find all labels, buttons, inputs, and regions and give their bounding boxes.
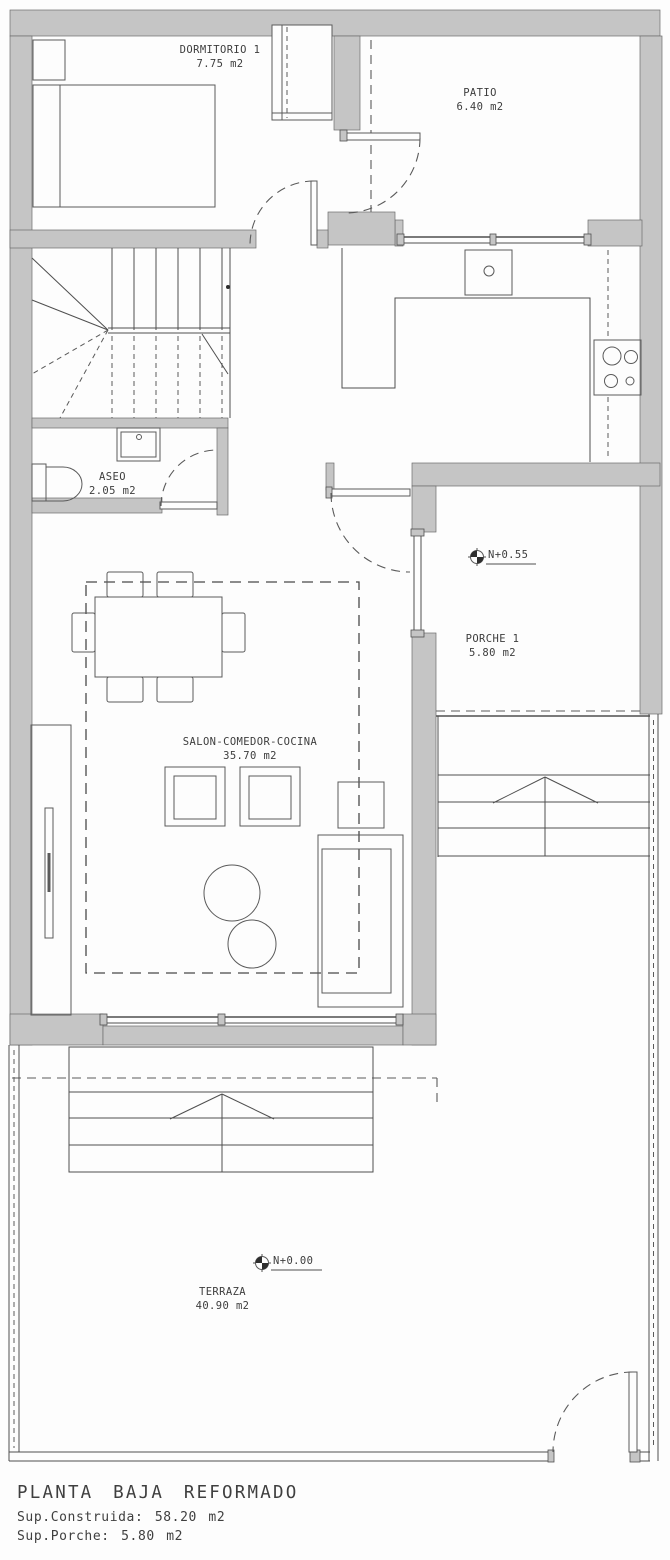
terrace-boundary: [9, 714, 658, 1462]
drawing-title: PLANTA BAJA REFORMADO: [17, 1483, 298, 1503]
level-label-porch: N+0.55: [488, 549, 528, 561]
patio-door: [340, 130, 420, 213]
roof-projection-lines: [12, 23, 652, 1102]
room-name: TERRAZA: [145, 1286, 300, 1300]
title-block: PLANTA BAJA REFORMADO Sup.Construida: 58…: [17, 1483, 298, 1548]
level-label-terrace: N+0.00: [273, 1255, 313, 1267]
tv-sideboard: [31, 725, 71, 1015]
porch-area-note: Sup.Porche: 5.80 m2: [17, 1529, 298, 1544]
room-name: DORMITORIO 1: [145, 44, 295, 58]
room-area: 5.80 m2: [415, 647, 570, 661]
room-label-porche: PORCHE 1 5.80 m2: [415, 633, 570, 660]
room-area: 2.05 m2: [50, 485, 175, 499]
entry-door: [326, 487, 410, 572]
room-name: ASEO: [50, 471, 175, 485]
kitchen-window: [397, 234, 591, 245]
exterior-walls: [10, 10, 662, 1045]
porch-steps: [436, 716, 650, 857]
nightstand: [33, 40, 65, 80]
room-area: 7.75 m2: [145, 58, 295, 72]
room-label-terraza: TERRAZA 40.90 m2: [145, 1286, 300, 1313]
room-label-aseo: ASEO 2.05 m2: [50, 471, 175, 498]
cooktop: [594, 340, 641, 395]
bedroom-door: [250, 181, 317, 245]
bathroom-sink: [117, 428, 160, 461]
staircase: [32, 248, 230, 418]
room-area: 6.40 m2: [405, 101, 555, 115]
room-name: PORCHE 1: [415, 633, 570, 647]
room-label-patio: PATIO 6.40 m2: [405, 87, 555, 114]
room-label-dormitorio: DORMITORIO 1 7.75 m2: [145, 44, 295, 71]
floor-plan-drawing: [0, 0, 670, 1560]
room-area: 40.90 m2: [145, 1300, 300, 1314]
floor-plan-canvas: DORMITORIO 1 7.75 m2 PATIO 6.40 m2 ASEO …: [0, 0, 670, 1560]
wardrobe: [272, 25, 332, 120]
terrace-steps: [69, 1047, 373, 1172]
terrace-gate: [553, 1372, 637, 1452]
armchair: [240, 767, 300, 826]
bed: [33, 85, 215, 207]
built-area-note: Sup.Construida: 58.20 m2: [17, 1510, 298, 1525]
room-label-salon: SALON-COMEDOR-COCINA 35.70 m2: [155, 736, 345, 763]
round-side-tables: [204, 865, 276, 968]
dining-table: [72, 572, 245, 702]
armchair: [165, 767, 225, 826]
kitchen-counter: [342, 248, 608, 462]
salon-terrace-window: [100, 1014, 403, 1025]
room-area: 35.70 m2: [155, 750, 345, 764]
salon-side-window: [411, 529, 424, 637]
kitchen-sink: [465, 250, 512, 295]
sofa: [318, 835, 403, 1007]
room-name: SALON-COMEDOR-COCINA: [155, 736, 345, 750]
sofa-side-table: [338, 782, 384, 828]
room-name: PATIO: [405, 87, 555, 101]
